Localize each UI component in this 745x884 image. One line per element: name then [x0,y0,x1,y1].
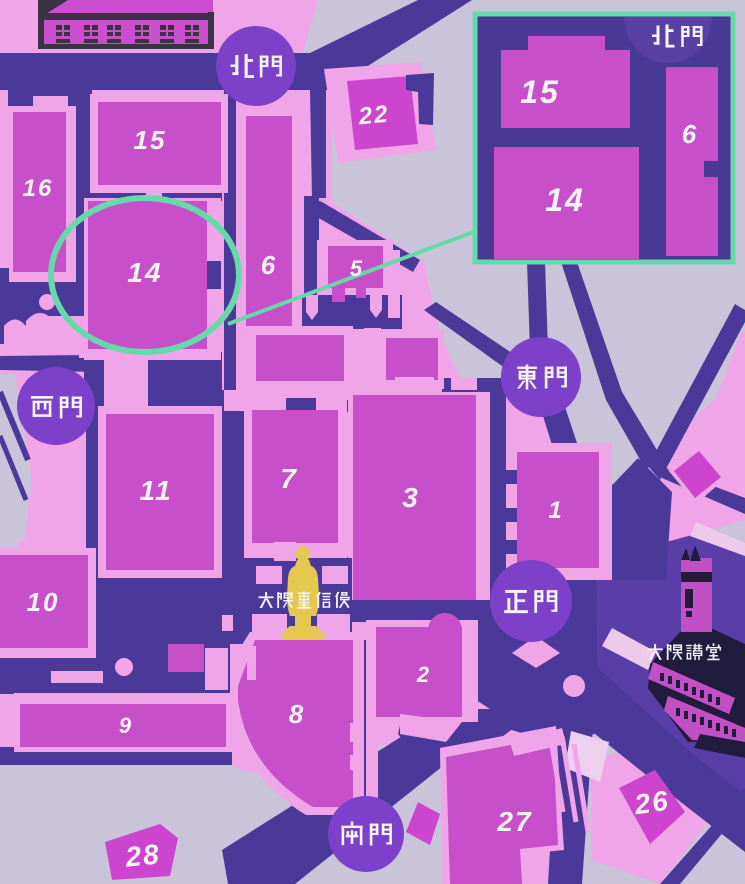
svg-text:14: 14 [127,257,162,288]
svg-text:9: 9 [119,713,133,738]
svg-text:6: 6 [261,250,277,280]
svg-text:5: 5 [350,256,364,281]
svg-text:10: 10 [27,587,60,617]
svg-text:27: 27 [496,806,532,837]
svg-text:8: 8 [289,699,305,729]
svg-text:2: 2 [416,662,431,687]
svg-text:16: 16 [23,175,54,202]
svg-text:6: 6 [682,119,698,149]
svg-text:11: 11 [139,475,172,506]
svg-text:7: 7 [280,463,298,494]
svg-text:15: 15 [520,74,560,110]
svg-text:1: 1 [548,497,563,524]
svg-text:15: 15 [134,125,167,155]
svg-text:22: 22 [356,100,390,130]
svg-text:28: 28 [123,838,162,873]
svg-text:3: 3 [402,482,420,513]
svg-text:26: 26 [632,785,672,821]
svg-text:14: 14 [545,182,585,218]
